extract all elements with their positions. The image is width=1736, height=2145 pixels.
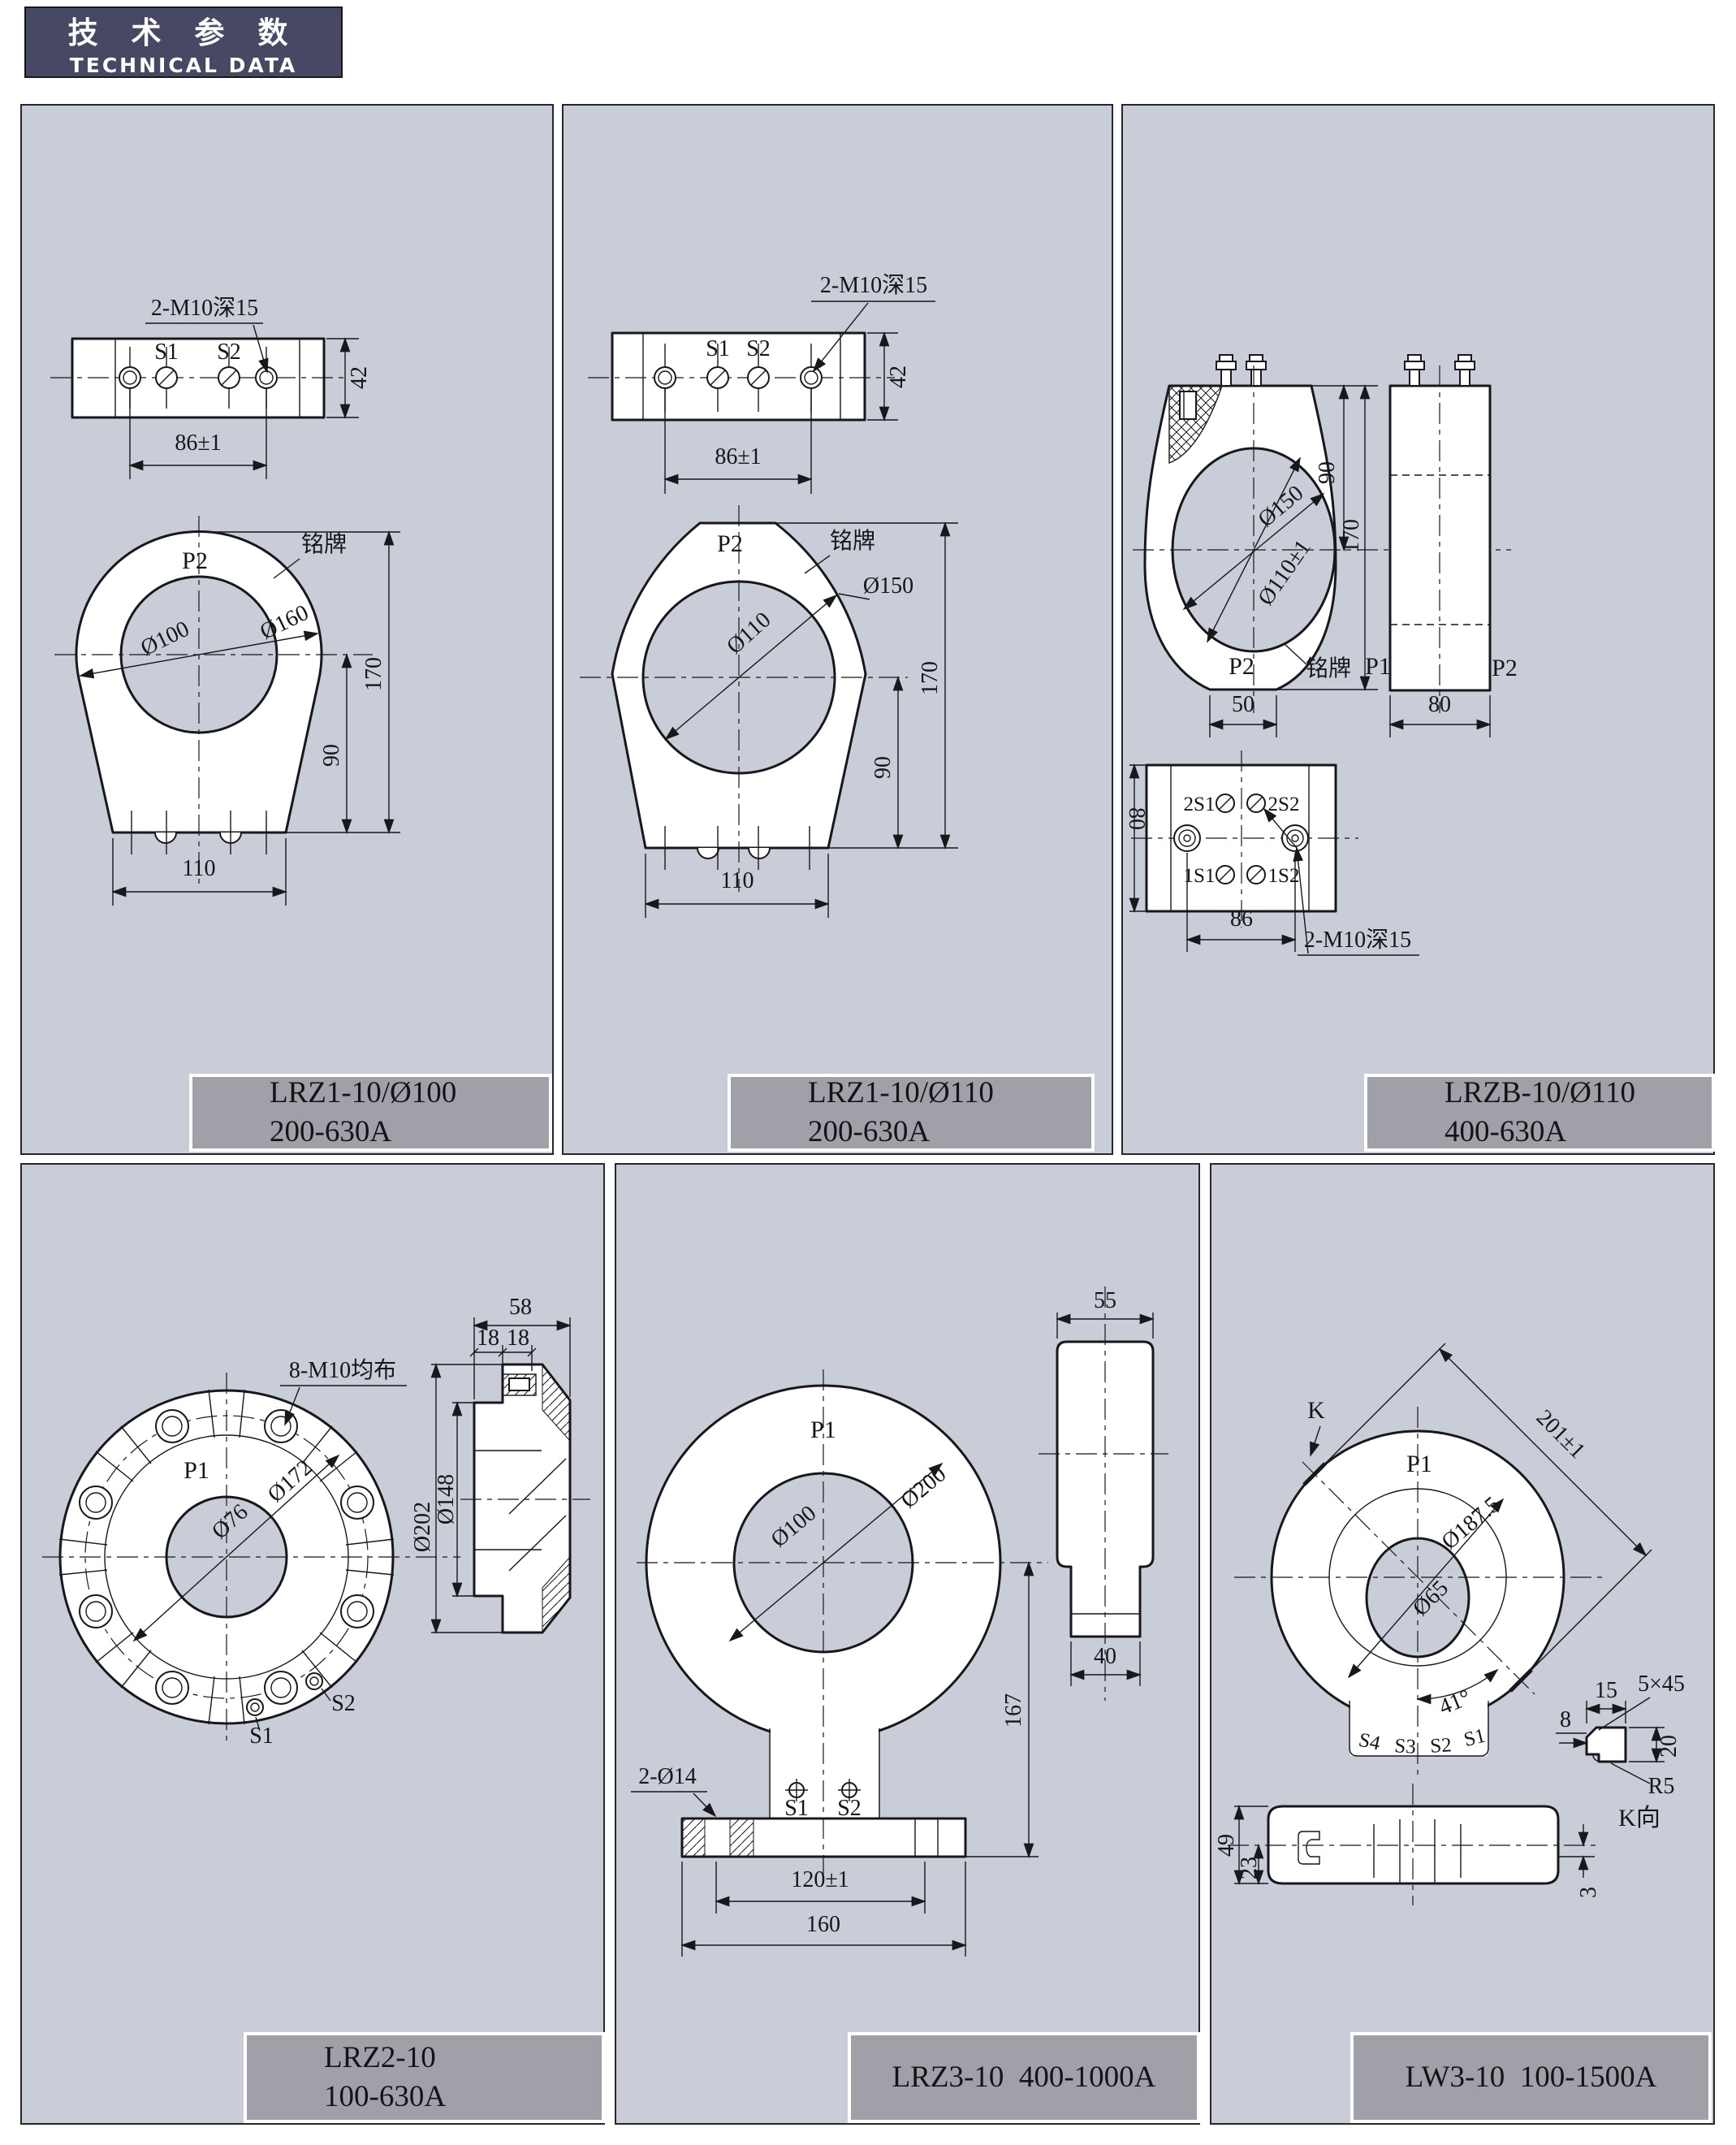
terminal-1s1-label: 1S1 — [1184, 865, 1216, 887]
terminal-2s1-label: 2S1 — [1184, 794, 1216, 815]
k-label: K — [1307, 1397, 1325, 1424]
dim-15: 15 — [1595, 1678, 1617, 1703]
panel-lrz1-110: S1 S2 2-M10深15 86±1 42 — [562, 104, 1113, 1155]
dim-55: 55 — [1094, 1288, 1116, 1313]
s2-label: S2 — [837, 1796, 862, 1821]
dim-167: 167 — [1001, 1693, 1026, 1728]
front-view: Ø100 Ø200 P1 S1 S2 2-Ø14 120±1 — [631, 1369, 1048, 1957]
front-view: Ø110 Ø150 P2 铭牌 90 170 110 — [580, 505, 958, 918]
side-view: 55 40 — [1039, 1287, 1168, 1701]
dim-20: 20 — [1656, 1735, 1682, 1758]
drawing-lrz3: Ø100 Ø200 P1 S1 S2 2-Ø14 120±1 — [616, 1165, 1202, 2126]
top-view: S1 S2 2-M10深15 86±1 42 — [50, 296, 372, 479]
model-label-lw3: LW3-10 100-1500A — [1350, 2032, 1712, 2123]
dia-outer-label: Ø150 — [863, 573, 913, 599]
model-label-lrz3: LRZ3-10 400-1000A — [848, 2032, 1200, 2123]
panel-lrzb-110: Ø150 Ø110±1 P2 铭牌 90 170 50 — [1121, 104, 1715, 1155]
dim-18b: 18 — [507, 1325, 529, 1351]
side-view: 58 18 18 Ø202 Ø148 — [410, 1295, 590, 1633]
thread-callout: 2-M10深15 — [1304, 928, 1411, 953]
p1-label: P1 — [810, 1416, 836, 1443]
dim-160: 160 — [806, 1912, 840, 1937]
p1-label: P1 — [1406, 1451, 1432, 1477]
drawing-lrz2: Ø76 Ø172 8-M10均布 P1 S1 S2 — [22, 1165, 607, 2126]
model-label-lrz2: LRZ2-10 100-630A — [244, 2032, 605, 2123]
dim-90: 90 — [870, 756, 896, 779]
dim-86: 86±1 — [715, 444, 761, 469]
model-range: 200-630A — [808, 1113, 1091, 1152]
dim-8: 8 — [1560, 1707, 1571, 1732]
nameplate-label: 铭牌 — [301, 531, 347, 557]
model-label-lrz1-100: LRZ1-10/Ø100 200-630A — [189, 1074, 552, 1152]
front-view: Ø100 Ø160 P2 铭牌 90 170 110 — [54, 516, 400, 906]
terminal-s2-label: S2 — [746, 336, 771, 361]
s1-label: S1 — [784, 1796, 809, 1821]
dim-201: 201±1 — [1531, 1405, 1590, 1464]
panel-lrz3: Ø100 Ø200 P1 S1 S2 2-Ø14 120±1 — [615, 1163, 1200, 2125]
panel-lw3: S4 S3 S2 S1 K 201±1 Ø65 Ø187.5 P1 41° — [1210, 1163, 1715, 2125]
bolt-callout: 8-M10均布 — [289, 1357, 396, 1383]
k-view-label: K向 — [1618, 1805, 1660, 1831]
front-view: Ø76 Ø172 8-M10均布 P1 S1 S2 — [42, 1357, 460, 1749]
model-range: 400-630A — [1445, 1113, 1712, 1152]
drawing-lrz1-100: S1 S2 2-M10深15 86±1 42 — [22, 106, 555, 1157]
dim-40: 40 — [1094, 1644, 1116, 1669]
dim-86: 86 — [1230, 906, 1253, 932]
dim-90: 90 — [319, 744, 344, 767]
dia-202-label: Ø202 — [410, 1502, 435, 1552]
technical-data-page: 技 术 参 数 TECHNICAL DATA — [0, 0, 1736, 2145]
panel-lrz1-100: S1 S2 2-M10深15 86±1 42 — [20, 104, 554, 1155]
model-name: LRZ3-10 400-1000A — [892, 2058, 1156, 2097]
drawing-lrzb-110: Ø150 Ø110±1 P2 铭牌 90 170 50 — [1123, 106, 1717, 1157]
dim-18a: 18 — [477, 1325, 499, 1351]
terminal-s1-label: S1 — [154, 339, 179, 365]
screw-icon — [1246, 355, 1266, 386]
dim-110: 110 — [721, 868, 754, 893]
nameplate-label: 铭牌 — [830, 528, 875, 554]
model-label-lrzb-110: LRZB-10/Ø110 400-630A — [1364, 1074, 1715, 1152]
thread-callout: 2-M10深15 — [820, 273, 927, 298]
dim-58: 58 — [509, 1295, 532, 1320]
model-name: LRZ1-10/Ø100 — [270, 1074, 549, 1113]
drawing-lrz1-110: S1 S2 2-M10深15 86±1 42 — [564, 106, 1115, 1157]
page-header: 技 术 参 数 TECHNICAL DATA — [24, 6, 343, 78]
front-view: S4 S3 S2 S1 K 201±1 Ø65 Ø187.5 P1 41° — [1234, 1343, 1652, 1779]
screw-icon — [1216, 355, 1236, 386]
dim-80: 80 — [1428, 692, 1451, 717]
model-range: 200-630A — [270, 1113, 549, 1152]
terminal-2s2-label: 2S2 — [1268, 794, 1300, 815]
s2-label: S2 — [331, 1691, 356, 1716]
radius-label: R5 — [1648, 1774, 1675, 1799]
screw-icon — [1455, 355, 1475, 386]
header-title-en: TECHNICAL DATA — [70, 54, 298, 77]
dim-90: 90 — [1315, 461, 1340, 484]
screw-icon — [1405, 355, 1424, 386]
dim-23: 23 — [1237, 1857, 1262, 1879]
dim-80v: 80 — [1124, 807, 1149, 830]
drawing-lw3: S4 S3 S2 S1 K 201±1 Ø65 Ø187.5 P1 41° — [1211, 1165, 1717, 2126]
model-name: LW3-10 100-1500A — [1406, 2058, 1657, 2097]
chamfer-label: 5×45 — [1638, 1671, 1685, 1697]
dim-170: 170 — [361, 657, 386, 691]
p2-side-label: P2 — [1492, 655, 1518, 681]
terminal-s1-label: S1 — [706, 336, 730, 361]
p2-label: P2 — [1229, 653, 1254, 680]
terminal-plate-view: 2S1 2S2 1S1 1S2 80 86 2-M10深15 — [1124, 750, 1419, 955]
thread-callout: 2-M10深15 — [151, 296, 258, 321]
dim-42: 42 — [886, 365, 911, 388]
bottom-view: 49 23 3 — [1214, 1784, 1601, 1905]
top-view: S1 S2 2-M10深15 86±1 42 — [588, 273, 935, 494]
model-name: LRZ2-10 — [324, 2039, 602, 2078]
p1-label: P1 — [184, 1457, 209, 1484]
dim-170: 170 — [918, 661, 943, 695]
s3-label: S3 — [1393, 1735, 1416, 1758]
dim-170: 170 — [1339, 519, 1364, 553]
header-title-cn: 技 术 参 数 — [68, 8, 300, 52]
model-range: 100-630A — [324, 2078, 602, 2117]
k-detail-view: 15 8 5×45 20 R5 K向 — [1556, 1671, 1685, 1831]
model-name: LRZB-10/Ø110 — [1445, 1074, 1712, 1113]
dim-3: 3 — [1576, 1887, 1601, 1898]
side-view: P1 P2 80 — [1365, 355, 1518, 737]
model-name: LRZ1-10/Ø110 — [808, 1074, 1091, 1113]
model-label-lrz1-110: LRZ1-10/Ø110 200-630A — [728, 1074, 1095, 1152]
dim-110: 110 — [183, 856, 216, 881]
dia-148-label: Ø148 — [434, 1474, 459, 1524]
dim-50: 50 — [1232, 692, 1254, 717]
dim-86: 86±1 — [175, 430, 221, 456]
panel-lrz2: Ø76 Ø172 8-M10均布 P1 S1 S2 — [20, 1163, 605, 2125]
terminal-s2-label: S2 — [217, 339, 241, 365]
s2-label: S2 — [1429, 1734, 1452, 1758]
dim-120: 120±1 — [791, 1867, 849, 1892]
hole-callout: 2-Ø14 — [638, 1764, 697, 1789]
s1-label: S1 — [249, 1723, 274, 1749]
dim-42: 42 — [347, 366, 372, 389]
p2-label: P2 — [182, 547, 208, 574]
p1-label: P1 — [1365, 653, 1391, 680]
nameplate-label: 铭牌 — [1306, 655, 1351, 681]
p2-label: P2 — [717, 530, 743, 557]
dim-49: 49 — [1214, 1834, 1239, 1857]
